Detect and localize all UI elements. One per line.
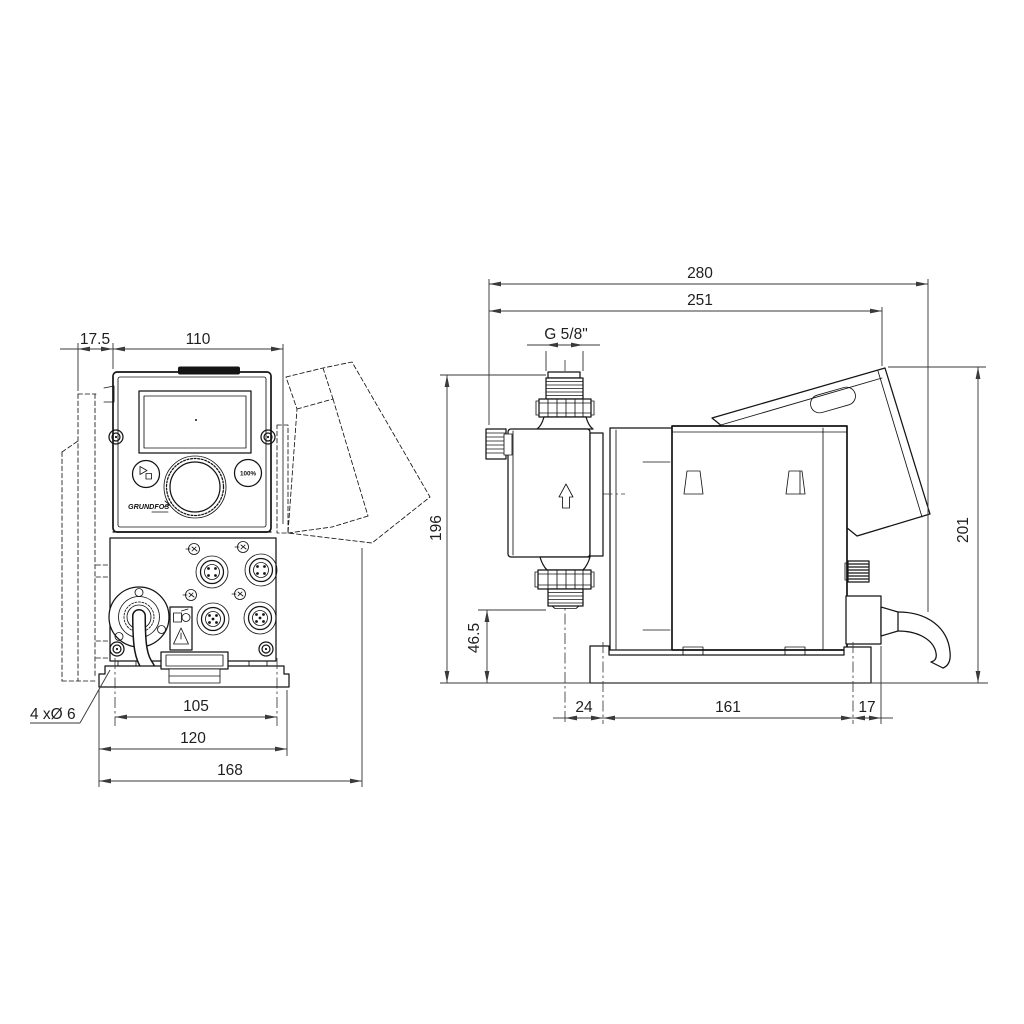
dosing-pump-dimensional-drawing: 100% GRUNDFOS <box>0 0 1024 1024</box>
suction-thread <box>548 589 583 609</box>
mounting-plate-side <box>590 646 871 683</box>
carry-tab <box>178 367 240 375</box>
dim-201-label: 201 <box>955 517 972 543</box>
threaded-plug <box>848 561 869 582</box>
power-cable-side <box>898 612 950 668</box>
holes-note-label: 4 xØ 6 <box>30 706 76 723</box>
head-back-flange <box>590 433 603 556</box>
gland-cone <box>881 607 898 636</box>
dim-161-label: 161 <box>715 699 741 716</box>
hood-front-dashed <box>277 362 430 543</box>
wall-bracket <box>62 394 112 681</box>
warning-label <box>170 607 192 650</box>
discharge-union-nut <box>536 399 594 417</box>
hundred-percent-button[interactable]: 100% <box>235 460 262 487</box>
dim-120-label: 120 <box>180 730 206 747</box>
pump-body-side <box>610 426 847 650</box>
dim-168-label: 168 <box>217 762 243 779</box>
suction-union-nut <box>535 570 594 589</box>
discharge-valve-cap <box>548 372 580 378</box>
side-view: 280 251 G 5/8" 196 46.5 201 <box>428 265 988 724</box>
pump-head-cylinder <box>508 429 590 557</box>
gland-block <box>846 596 881 644</box>
dim-110-label: 110 <box>186 331 211 348</box>
thread-size-label: G 5/8" <box>544 326 587 343</box>
din-rail-clip <box>161 652 228 683</box>
connector-4 <box>244 602 276 634</box>
dim-46-5-label: 46.5 <box>466 623 483 653</box>
dim-251-label: 251 <box>687 292 713 309</box>
click-wheel[interactable] <box>164 456 226 518</box>
dim-17-label: 17 <box>858 699 875 716</box>
dim-105-label: 105 <box>183 698 209 715</box>
connector-3 <box>197 603 229 635</box>
start-stop-button[interactable] <box>133 461 160 488</box>
brand-text: GRUNDFOS <box>128 502 169 511</box>
front-view: 100% GRUNDFOS <box>30 331 430 787</box>
brand-logo: GRUNDFOS <box>128 501 170 512</box>
dim-280-label: 280 <box>687 265 713 282</box>
technical-drawing-page: 100% GRUNDFOS <box>0 0 1024 1024</box>
dim-17-5-label: 17.5 <box>80 331 110 348</box>
hundred-percent-label: 100% <box>240 471 257 478</box>
dim-24-label: 24 <box>575 699 593 716</box>
discharge-thread <box>546 378 583 399</box>
dim-196-label: 196 <box>428 515 445 541</box>
